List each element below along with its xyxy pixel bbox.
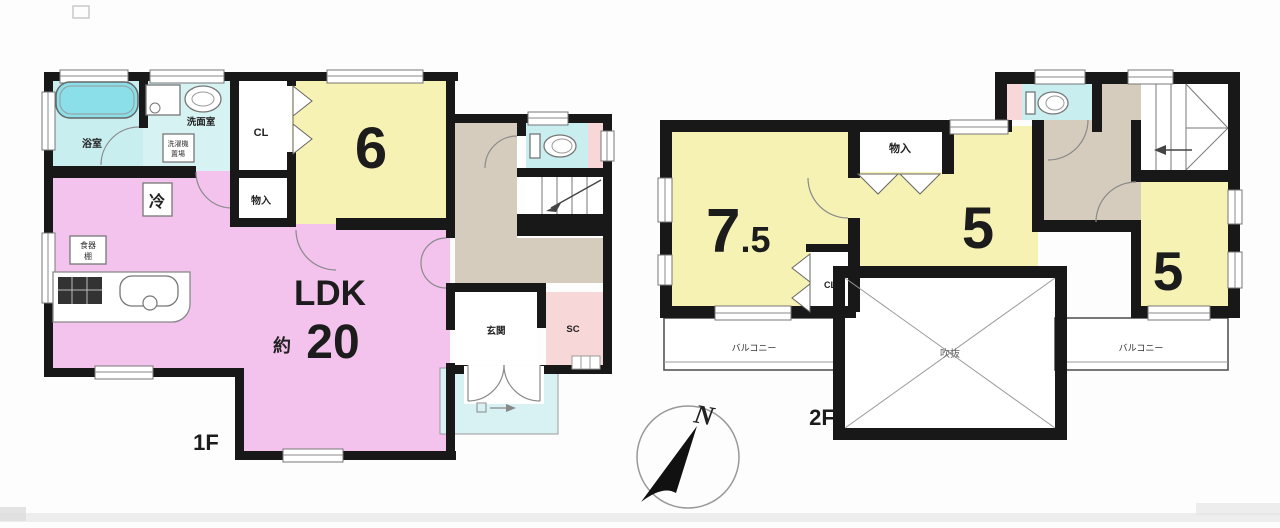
washbasin-icon [185,86,221,112]
stairs-area-1f [526,177,603,214]
floorplan-image: 浴室 洗面室 洗濯機 置場 冷 食器 棚 CL 物入 6 LDK 約 20 玄関 [0,0,1280,528]
void-label: 吹抜 [940,347,960,360]
washer-label-line1: 洗濯機 [168,139,189,148]
toilet-icon-2f [1026,92,1068,114]
cupboard-label-line1: 食器 [80,240,96,250]
balcony-left-label: バルコニー [732,343,777,353]
washer-label-line2: 置場 [171,149,185,158]
stairs-area-2f [1141,84,1228,170]
refrigerator-label: 冷 [149,192,165,211]
ldk-title-label: LDK [294,274,366,313]
cupboard-box: 食器 棚 [70,236,106,264]
washroom-label: 洗面室 [187,116,216,128]
bathtub-icon [56,82,138,118]
compass-north-arrow [641,426,697,502]
room5-center-size-label: 5 [962,196,994,261]
ldk-size-label: 20 [306,316,359,369]
floor2-title: 2F [809,405,835,430]
closet-label-2f: CL [824,280,836,290]
floor2-plan: 7.5 物入 5 CL 5 吹抜 バルコニー バルコニー 2F [658,70,1242,440]
cupboard-label-line2: 棚 [84,251,92,261]
washer-box: 洗濯機 置場 [163,134,194,162]
storage-label-1f: 物入 [251,194,271,207]
bath-label: 浴室 [82,137,102,150]
compass: N [637,398,739,508]
shoe-closet-label: SC [566,324,579,335]
floorplan-canvas: 浴室 洗面室 洗濯機 置場 冷 食器 棚 CL 物入 6 LDK 約 20 玄関 [0,0,1280,528]
entrance-step [572,356,600,369]
balcony-right-label: バルコニー [1119,343,1164,353]
washer-pan-icon [146,85,180,115]
room6-size-label: 6 [355,116,387,181]
floor1-title: 1F [193,430,219,455]
closet-label-1f: CL [254,127,269,139]
ldk-approx-label: 約 [273,335,291,356]
closet-area-1f [235,76,292,176]
floor1-plan: 浴室 洗面室 洗濯機 置場 冷 食器 棚 CL 物入 6 LDK 約 20 玄関 [42,70,614,462]
ldk-area-extension [239,370,450,457]
entrance-label: 玄関 [486,325,505,337]
compass-north-label: N [691,398,718,431]
room5-right-size-label: 5 [1153,240,1184,302]
storage-label-2f: 物入 [889,141,911,155]
refrigerator-box: 冷 [143,183,172,216]
kitchen-counter-icon [53,272,190,322]
toilet-icon-1f [530,134,576,158]
